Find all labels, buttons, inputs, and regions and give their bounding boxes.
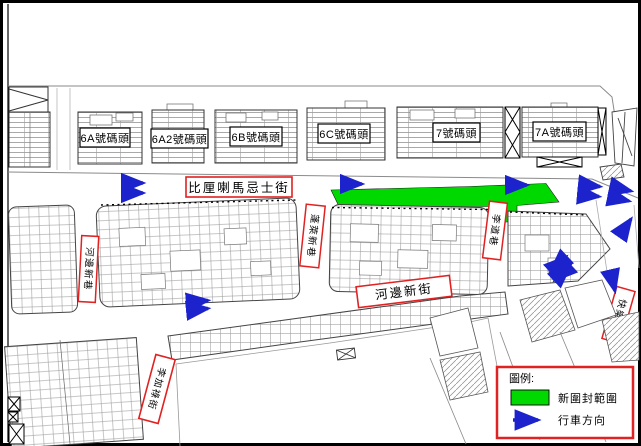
pier-6a2-label: 6A2號碼頭 xyxy=(152,133,208,146)
lane-west-label-group: 河邊新巷 xyxy=(78,236,98,303)
pier-7-building: 7號碼頭 xyxy=(397,107,520,158)
pier-6a2-building: 6A2號碼頭 xyxy=(151,104,208,163)
pier-6c-label: 6C號碼頭 xyxy=(319,128,369,141)
pier-7a-label: 7A號碼頭 xyxy=(535,126,584,139)
direction-arrow xyxy=(193,309,208,311)
lane-west-label: 河邊新巷 xyxy=(81,247,95,292)
city-block-central xyxy=(96,198,300,308)
direction-arrow xyxy=(584,185,600,187)
direction-arrow xyxy=(583,195,599,197)
legend-closure-label: 新圍封範圍 xyxy=(558,391,618,405)
main-street-label-group: 比厘喇馬忌士街 xyxy=(186,177,292,197)
pier-6a-building: 6A號碼頭 xyxy=(78,112,142,164)
legend-title: 圖例: xyxy=(509,371,534,385)
direction-arrow xyxy=(193,301,208,303)
legend: 圖例: 新圍封範圍 行車方向 xyxy=(497,367,633,438)
gangway-structure xyxy=(505,107,520,158)
traffic-notice-map: 6A號碼頭 6A2號碼頭 6B號碼頭 6C號碼頭 7號碼頭 xyxy=(0,0,641,446)
pier-6b-building: 6B號碼頭 xyxy=(215,110,297,163)
pier-6a-label: 6A號碼頭 xyxy=(81,132,130,145)
city-block-west xyxy=(8,205,78,314)
pier-7a-building: 7A號碼頭 xyxy=(522,103,606,167)
map-canvas: 6A號碼頭 6A2號碼頭 6B號碼頭 6C號碼頭 7號碼頭 xyxy=(0,0,641,446)
legend-closure-swatch xyxy=(511,390,549,405)
pier-6b-label: 6B號碼頭 xyxy=(232,131,281,144)
main-street-label: 比厘喇馬忌士街 xyxy=(188,180,290,195)
pier-7-label: 7號碼頭 xyxy=(436,127,477,140)
pier-6c-building: 6C號碼頭 xyxy=(307,101,385,160)
city-block-southwest xyxy=(5,338,144,446)
legend-direction-label: 行車方向 xyxy=(558,413,606,427)
